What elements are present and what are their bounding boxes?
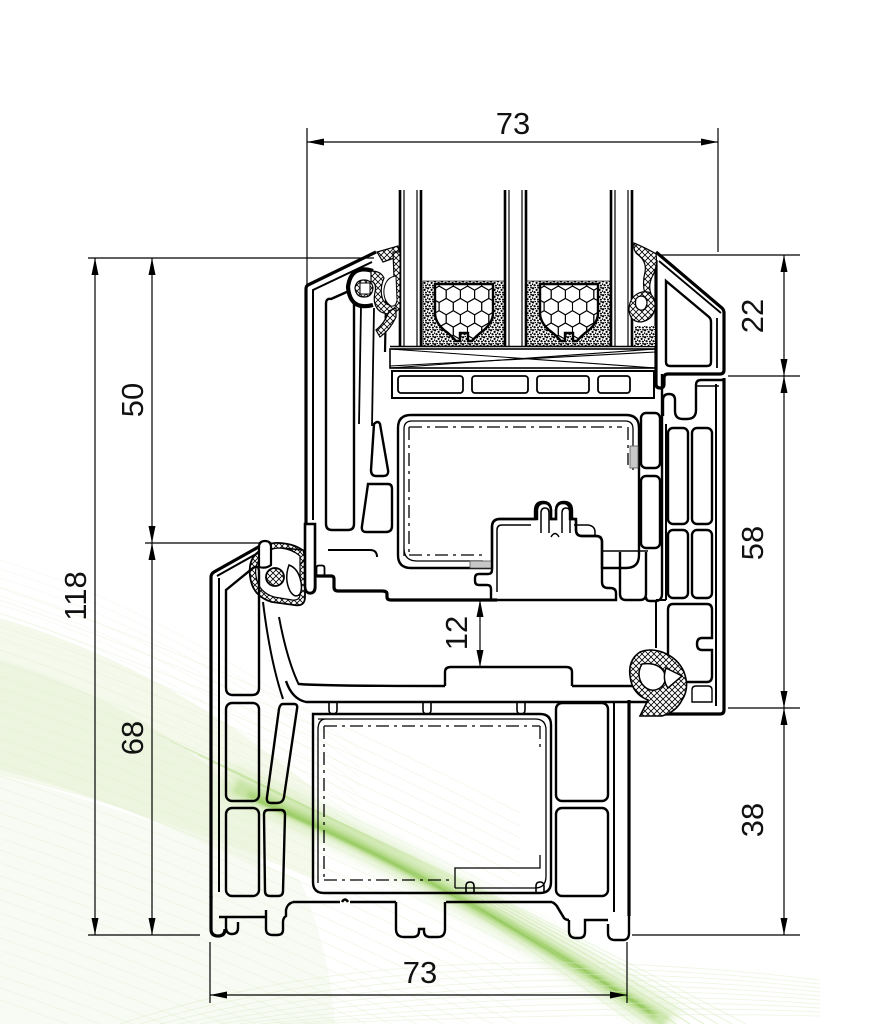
svg-text:73: 73 <box>496 106 530 141</box>
svg-text:22: 22 <box>735 299 770 333</box>
svg-text:38: 38 <box>735 803 770 837</box>
svg-text:118: 118 <box>58 571 93 620</box>
svg-text:50: 50 <box>115 383 150 417</box>
svg-text:73: 73 <box>403 955 437 990</box>
svg-text:58: 58 <box>735 526 770 560</box>
svg-text:68: 68 <box>115 721 150 755</box>
svg-text:12: 12 <box>439 616 474 650</box>
